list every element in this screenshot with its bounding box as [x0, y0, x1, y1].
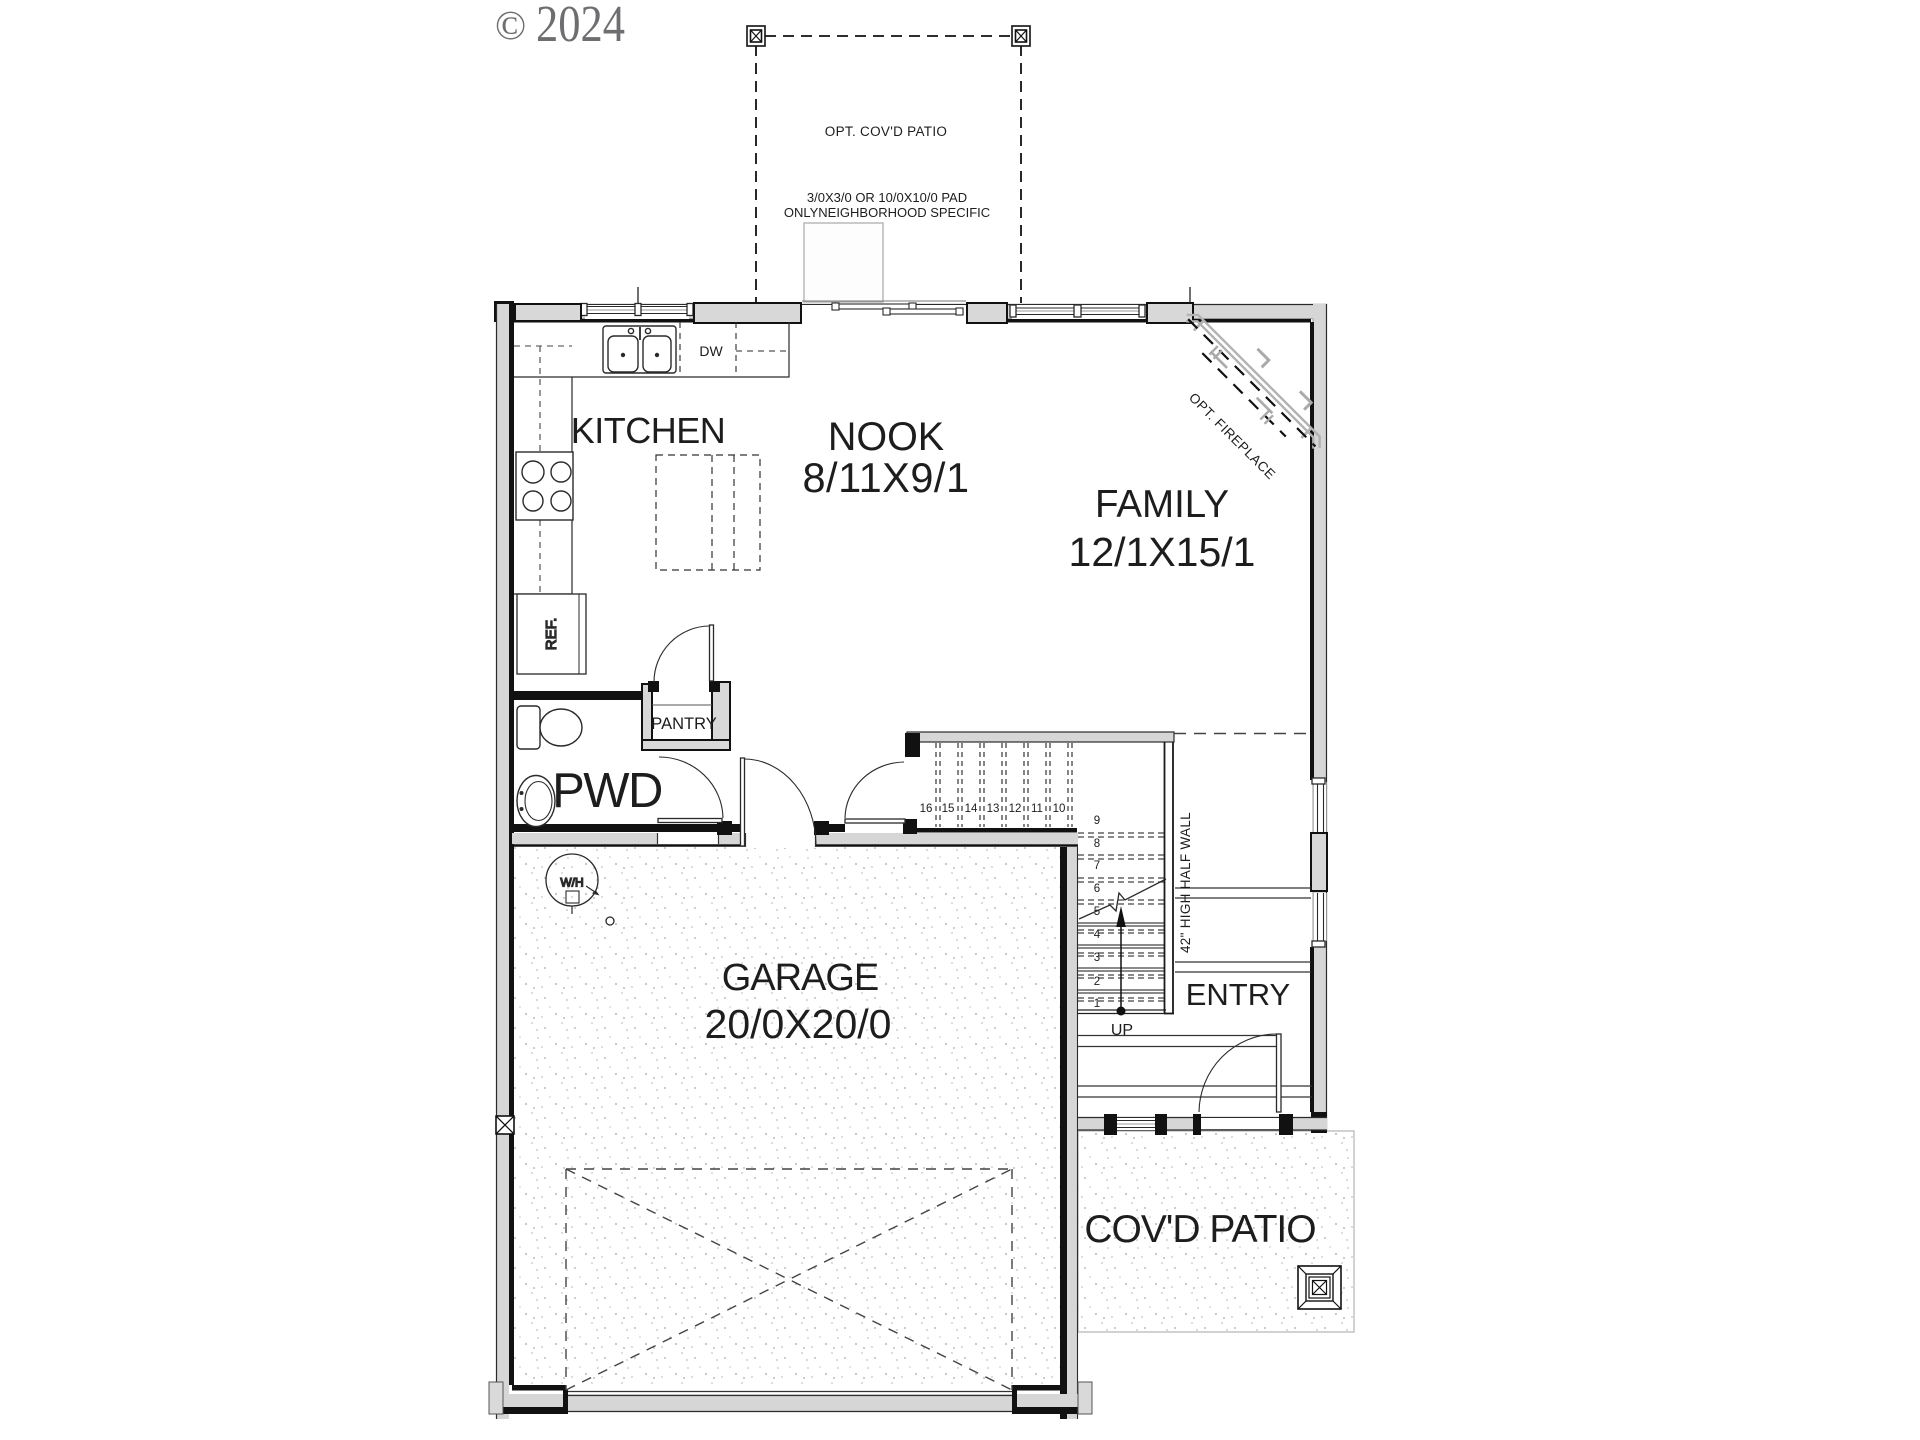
- svg-text:8/11X9/1: 8/11X9/1: [802, 454, 969, 501]
- svg-text:8: 8: [1094, 838, 1100, 850]
- svg-text:20/0X20/0: 20/0X20/0: [705, 1001, 892, 1047]
- svg-text:15: 15: [942, 803, 955, 815]
- svg-text:W/H: W/H: [560, 876, 583, 890]
- svg-text:11: 11: [1031, 803, 1043, 815]
- svg-text:NOOK: NOOK: [828, 415, 944, 459]
- svg-text:14: 14: [965, 803, 978, 815]
- svg-text:3: 3: [1094, 952, 1100, 964]
- svg-text:4: 4: [1094, 929, 1101, 941]
- svg-text:PWD: PWD: [552, 764, 662, 818]
- svg-text:13: 13: [987, 803, 1000, 815]
- svg-text:1: 1: [1094, 998, 1100, 1010]
- svg-text:12/1X15/1: 12/1X15/1: [1069, 529, 1256, 575]
- svg-text:FAMILY: FAMILY: [1095, 483, 1229, 526]
- svg-text:3/0X3/0 OR 10/0X10/0 PAD: 3/0X3/0 OR 10/0X10/0 PAD: [807, 190, 967, 205]
- svg-text:ONLYNEIGHBORHOOD SPECIFIC: ONLYNEIGHBORHOOD SPECIFIC: [784, 205, 990, 220]
- svg-text:7: 7: [1094, 860, 1100, 872]
- svg-text:2: 2: [1094, 976, 1100, 988]
- svg-text:OPT. COV'D PATIO: OPT. COV'D PATIO: [825, 124, 947, 139]
- svg-text:16: 16: [920, 803, 933, 815]
- svg-text:2024: 2024: [536, 0, 625, 53]
- svg-text:©: ©: [495, 2, 526, 48]
- svg-text:KITCHEN: KITCHEN: [571, 410, 726, 451]
- svg-text:DW: DW: [699, 343, 723, 359]
- svg-text:REF.: REF.: [543, 618, 560, 651]
- svg-text:GARAGE: GARAGE: [722, 957, 879, 999]
- svg-text:9: 9: [1094, 815, 1100, 827]
- svg-text:UP: UP: [1111, 1022, 1133, 1039]
- svg-text:COV'D PATIO: COV'D PATIO: [1084, 1208, 1315, 1251]
- svg-text:10: 10: [1053, 803, 1066, 815]
- svg-text:6: 6: [1094, 883, 1100, 895]
- svg-text:42" HIGH HALF WALL: 42" HIGH HALF WALL: [1178, 812, 1193, 953]
- svg-text:ENTRY: ENTRY: [1186, 977, 1291, 1012]
- svg-text:12: 12: [1009, 803, 1022, 815]
- svg-text:PANTRY: PANTRY: [651, 715, 716, 733]
